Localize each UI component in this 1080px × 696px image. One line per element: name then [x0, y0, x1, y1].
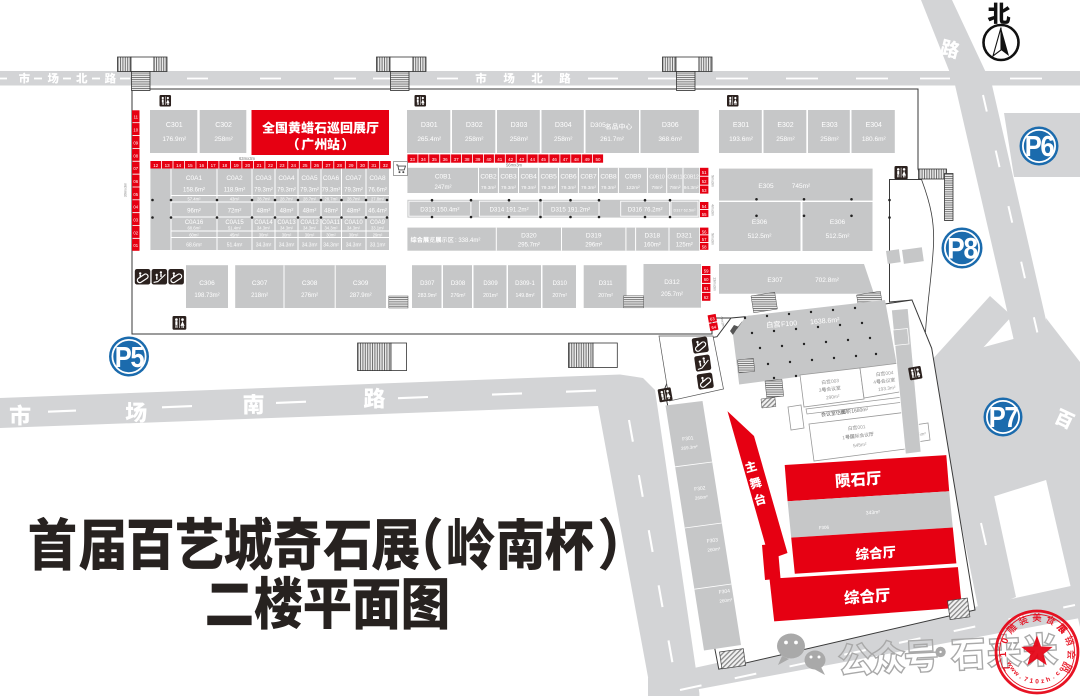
svg-text:247m²: 247m² — [434, 185, 451, 191]
svg-text:C0A6: C0A6 — [323, 175, 340, 182]
svg-text:48m²: 48m² — [303, 209, 317, 215]
svg-text:E302: E302 — [777, 122, 793, 129]
svg-text:D307: D307 — [420, 281, 435, 287]
svg-text:05: 05 — [133, 192, 138, 197]
svg-text:E307: E307 — [767, 277, 783, 284]
svg-text:09: 09 — [133, 140, 138, 145]
svg-text:13mx3m: 13mx3m — [713, 277, 717, 291]
svg-text:30: 30 — [360, 163, 366, 168]
svg-text:25: 25 — [303, 163, 309, 168]
svg-text:30m²: 30m² — [326, 232, 336, 237]
svg-text:E303: E303 — [821, 122, 837, 129]
svg-text:27: 27 — [325, 163, 331, 168]
svg-text:D318: D318 — [645, 233, 661, 240]
svg-text:34.3m²: 34.3m² — [256, 243, 272, 249]
svg-text:P8: P8 — [947, 231, 977, 265]
svg-text:D302: D302 — [466, 122, 483, 129]
svg-text:20: 20 — [245, 163, 251, 168]
svg-text:02: 02 — [133, 230, 138, 235]
svg-text:702.8m²: 702.8m² — [815, 277, 840, 284]
svg-text:D314 191.2m²: D314 191.2m² — [489, 207, 528, 214]
svg-text:79.3m²: 79.3m² — [581, 185, 596, 191]
svg-text:01: 01 — [133, 243, 138, 248]
svg-text:h: h — [1045, 676, 1051, 684]
svg-text:D309-1: D309-1 — [515, 281, 535, 287]
svg-text:D304: D304 — [555, 122, 572, 129]
svg-text:1: 1 — [1029, 678, 1034, 686]
svg-text:27.8m²: 27.8m² — [371, 196, 385, 201]
svg-text:E304: E304 — [866, 122, 882, 129]
svg-text:48m²: 48m² — [324, 209, 338, 215]
svg-text:C0A8: C0A8 — [369, 175, 386, 182]
svg-text:30m²: 30m² — [349, 232, 359, 237]
svg-text:D306: D306 — [662, 122, 679, 129]
svg-text:18: 18 — [222, 163, 228, 168]
svg-text:79.3m²: 79.3m² — [601, 185, 616, 191]
svg-text:P5: P5 — [115, 340, 145, 373]
svg-text:96m²: 96m² — [187, 209, 201, 215]
svg-text:58: 58 — [702, 245, 707, 250]
svg-text:34.3m²: 34.3m² — [280, 226, 294, 231]
svg-text:34.3m²: 34.3m² — [303, 226, 317, 231]
svg-text:04: 04 — [133, 205, 138, 210]
svg-text:258m²: 258m² — [554, 136, 573, 143]
svg-text:28.7m²: 28.7m² — [303, 196, 317, 201]
svg-text:C0B10: C0B10 — [649, 175, 665, 181]
svg-text:258m²: 258m² — [214, 136, 233, 143]
svg-text:F100: F100 — [781, 320, 798, 328]
svg-text:258m²: 258m² — [510, 136, 529, 143]
svg-text:: 338.4m²: : 338.4m² — [455, 238, 480, 244]
svg-text:258m²: 258m² — [820, 136, 839, 143]
svg-text:C0B6: C0B6 — [560, 174, 577, 181]
svg-text:D309: D309 — [483, 281, 498, 287]
svg-text:79.3m²: 79.3m² — [300, 188, 319, 194]
svg-text:7: 7 — [1023, 676, 1029, 684]
svg-text:79.3m²: 79.3m² — [541, 185, 556, 191]
svg-text:28: 28 — [337, 163, 343, 168]
svg-text:283.9m²: 283.9m² — [418, 293, 437, 299]
svg-text:296m²: 296m² — [585, 243, 602, 249]
svg-text:45: 45 — [541, 157, 547, 162]
svg-text:38: 38 — [464, 157, 470, 162]
svg-text:158.6m²: 158.6m² — [183, 188, 205, 194]
svg-text:34: 34 — [421, 157, 427, 162]
svg-text:D312: D312 — [664, 279, 680, 286]
svg-text:26: 26 — [314, 163, 320, 168]
svg-text:49: 49 — [585, 157, 591, 162]
svg-text:29: 29 — [348, 163, 354, 168]
svg-text:512.5m²: 512.5m² — [748, 233, 773, 240]
svg-text:45m²: 45m² — [230, 232, 240, 237]
svg-text:62: 62 — [704, 295, 709, 300]
svg-text:56: 56 — [702, 229, 707, 234]
svg-text:C302: C302 — [215, 122, 232, 129]
svg-text:D308: D308 — [451, 281, 466, 287]
svg-text:06: 06 — [133, 179, 138, 184]
svg-text:43m²: 43m² — [230, 196, 240, 201]
svg-text:125m²: 125m² — [676, 243, 693, 249]
svg-text:34.3m²: 34.3m² — [324, 226, 338, 231]
svg-text:28.7m²: 28.7m² — [324, 196, 338, 201]
svg-text:9mx3m: 9mx3m — [711, 233, 715, 245]
svg-text:149.8m²: 149.8m² — [515, 293, 534, 299]
svg-text:C0B1: C0B1 — [435, 174, 452, 181]
svg-text:52: 52 — [702, 179, 707, 184]
svg-text:160m²: 160m² — [644, 243, 661, 249]
svg-text:39mx3m: 39mx3m — [124, 183, 128, 198]
svg-text:C0B3: C0B3 — [500, 174, 517, 181]
svg-text:48m²: 48m² — [257, 209, 271, 215]
svg-text:C0B5: C0B5 — [540, 174, 557, 181]
svg-text:79.3m²: 79.3m² — [277, 188, 296, 194]
svg-text:9mx3m: 9mx3m — [711, 175, 715, 187]
svg-text:33.1m²: 33.1m² — [371, 226, 385, 231]
svg-text:28.7m²: 28.7m² — [280, 196, 294, 201]
svg-text:56mx3m: 56mx3m — [506, 163, 523, 168]
svg-text:50: 50 — [596, 157, 602, 162]
svg-text:C0A4: C0A4 — [278, 175, 295, 182]
svg-text:.: . — [1018, 674, 1023, 681]
svg-text:41: 41 — [497, 157, 503, 162]
svg-text:19: 19 — [234, 163, 240, 168]
svg-text:D313 150.4m²: D313 150.4m² — [420, 207, 459, 214]
svg-text:C307: C307 — [252, 280, 268, 287]
svg-text:E306: E306 — [752, 219, 768, 226]
svg-text:79.3m²: 79.3m² — [561, 185, 576, 191]
svg-text:21: 21 — [257, 163, 263, 168]
svg-text:34.3m²: 34.3m² — [346, 243, 362, 249]
svg-text:28.7m²: 28.7m² — [347, 196, 361, 201]
svg-text:258m²: 258m² — [776, 136, 795, 143]
svg-text:34.3m²: 34.3m² — [257, 226, 271, 231]
svg-text:207m²: 207m² — [552, 293, 567, 299]
svg-text:207m²: 207m² — [598, 293, 613, 299]
svg-text:07: 07 — [133, 166, 138, 171]
svg-text:D315 191.2m²: D315 191.2m² — [551, 207, 590, 214]
svg-text:34.3m²: 34.3m² — [302, 243, 318, 249]
svg-text:P6: P6 — [1025, 130, 1055, 163]
svg-text:C0B2: C0B2 — [480, 174, 497, 181]
svg-text:193.6m²: 193.6m² — [729, 136, 754, 143]
svg-text:48m²: 48m² — [280, 209, 294, 215]
svg-text:122m²: 122m² — [626, 185, 640, 191]
svg-text:22: 22 — [268, 163, 274, 168]
svg-text:D320: D320 — [521, 233, 537, 240]
svg-text:D316 76.2m²: D316 76.2m² — [628, 208, 663, 214]
svg-text:368.6m²: 368.6m² — [658, 136, 683, 143]
svg-text:14: 14 — [176, 163, 182, 168]
svg-text:37: 37 — [454, 157, 460, 162]
svg-text:79.3m²: 79.3m² — [521, 185, 536, 191]
svg-text:D319: D319 — [586, 233, 602, 240]
svg-text:D321: D321 — [676, 233, 692, 240]
svg-text:51: 51 — [702, 170, 707, 175]
svg-text:276m²: 276m² — [451, 293, 466, 299]
svg-text:4mx2m: 4mx2m — [720, 316, 726, 328]
svg-text:79.3m²: 79.3m² — [501, 185, 516, 191]
svg-text:C308: C308 — [302, 280, 318, 287]
svg-text:C0A1: C0A1 — [186, 175, 203, 182]
svg-text:68.6m²: 68.6m² — [186, 243, 202, 249]
svg-text:C0B8: C0B8 — [600, 174, 617, 181]
svg-text:512.5m²: 512.5m² — [826, 233, 851, 240]
svg-text:180.6m²: 180.6m² — [862, 136, 887, 143]
svg-text:79.3m²: 79.3m² — [344, 188, 363, 194]
svg-text:79.3m²: 79.3m² — [254, 188, 273, 194]
svg-text:D305: D305 — [590, 122, 606, 129]
svg-text:C301: C301 — [166, 122, 183, 129]
svg-text:46: 46 — [552, 157, 558, 162]
svg-text:53: 53 — [702, 188, 707, 193]
svg-text:11: 11 — [134, 115, 139, 120]
svg-text:C0B11: C0B11 — [668, 175, 683, 181]
svg-text:57: 57 — [702, 237, 707, 242]
svg-text:4mx3m: 4mx3m — [711, 204, 715, 216]
svg-text:13: 13 — [165, 163, 171, 168]
svg-text:D301: D301 — [421, 122, 438, 129]
svg-text:D310: D310 — [553, 281, 568, 287]
svg-text:10: 10 — [133, 128, 138, 133]
svg-text:46.4m²: 46.4m² — [368, 209, 387, 215]
svg-text:23: 23 — [280, 163, 286, 168]
svg-text:39: 39 — [475, 157, 481, 162]
svg-text:48m²: 48m² — [347, 209, 361, 215]
svg-text:60m²: 60m² — [189, 232, 199, 237]
svg-text:C0A2: C0A2 — [226, 175, 243, 182]
svg-text:295.7m²: 295.7m² — [518, 243, 540, 249]
svg-text:258m²: 258m² — [465, 136, 484, 143]
svg-text:C309: C309 — [353, 280, 369, 287]
svg-text:55: 55 — [702, 212, 707, 217]
svg-text:44: 44 — [530, 157, 536, 162]
svg-text:D311: D311 — [599, 281, 614, 287]
svg-text:03: 03 — [133, 218, 138, 223]
svg-text:08: 08 — [133, 153, 138, 158]
svg-text:C0B9: C0B9 — [625, 174, 642, 181]
svg-text:60: 60 — [704, 277, 709, 282]
svg-text:47: 47 — [563, 157, 569, 162]
svg-text:34.3m²: 34.3m² — [347, 226, 361, 231]
svg-text:48: 48 — [574, 157, 580, 162]
svg-text:31: 31 — [371, 163, 377, 168]
svg-text:261.7m²: 261.7m² — [600, 136, 625, 143]
svg-text:42: 42 — [508, 157, 514, 162]
svg-text:003: 003 — [831, 378, 840, 385]
svg-text:P7: P7 — [989, 401, 1018, 434]
svg-text:79.3m²: 79.3m² — [322, 188, 341, 194]
svg-text:118.9m²: 118.9m² — [224, 188, 246, 194]
svg-text:54: 54 — [702, 204, 707, 209]
svg-text:79.3m²: 79.3m² — [481, 185, 496, 191]
svg-text:36: 36 — [443, 157, 449, 162]
svg-text:51.4m²: 51.4m² — [228, 226, 242, 231]
svg-text:43: 43 — [519, 157, 525, 162]
svg-text:D303: D303 — [511, 122, 528, 129]
svg-text:343m²: 343m² — [866, 509, 881, 516]
svg-text:205.7m²: 205.7m² — [661, 292, 683, 298]
svg-text:29m²: 29m² — [373, 232, 383, 237]
svg-text:72m²: 72m² — [228, 209, 242, 215]
svg-text:78m²: 78m² — [670, 185, 681, 191]
svg-text:33: 33 — [410, 157, 416, 162]
svg-text:94.3m²: 94.3m² — [684, 185, 699, 191]
svg-text:C0A7: C0A7 — [345, 175, 362, 182]
svg-text:40: 40 — [486, 157, 492, 162]
svg-text:C306: C306 — [199, 280, 215, 287]
svg-text:33.1m²: 33.1m² — [370, 243, 386, 249]
svg-text:78m²: 78m² — [652, 185, 663, 191]
svg-text:265.4m²: 265.4m² — [417, 136, 442, 143]
svg-text:28.7m²: 28.7m² — [257, 196, 271, 201]
svg-text:C0A3: C0A3 — [255, 175, 272, 182]
svg-text:24: 24 — [291, 163, 297, 168]
svg-text:30m²: 30m² — [259, 232, 269, 237]
svg-text:63mx3m: 63mx3m — [239, 156, 256, 161]
svg-text:E301: E301 — [733, 122, 749, 129]
svg-text:218m²: 218m² — [251, 293, 268, 299]
svg-text:F306: F306 — [819, 525, 830, 531]
svg-text:E306: E306 — [830, 219, 846, 226]
svg-text:59: 59 — [704, 268, 709, 273]
svg-text:276m²: 276m² — [301, 293, 318, 299]
svg-text:30m²: 30m² — [282, 232, 292, 237]
svg-text:57.4m²: 57.4m² — [187, 196, 201, 201]
svg-text:76.6m²: 76.6m² — [368, 188, 387, 194]
svg-text:34.3m²: 34.3m² — [279, 243, 295, 249]
svg-text:001: 001 — [857, 424, 866, 431]
svg-text:D317 62.5m²: D317 62.5m² — [674, 209, 697, 213]
svg-text:68.6m²: 68.6m² — [187, 226, 201, 231]
svg-text:176.9m²: 176.9m² — [162, 136, 187, 143]
svg-text:51.4m²: 51.4m² — [227, 243, 243, 249]
svg-text:17: 17 — [211, 163, 217, 168]
svg-text:198.73m²: 198.73m² — [194, 293, 219, 299]
svg-text:30m²: 30m² — [305, 232, 315, 237]
svg-text:745m²: 745m² — [792, 183, 811, 190]
svg-text:15: 15 — [188, 163, 194, 168]
svg-text:E305: E305 — [758, 183, 774, 190]
svg-text:C0B4: C0B4 — [520, 174, 537, 181]
svg-text:32: 32 — [383, 163, 389, 168]
svg-text:35: 35 — [432, 157, 438, 162]
svg-text:C0B7: C0B7 — [580, 174, 597, 181]
svg-text:287.9m²: 287.9m² — [350, 293, 372, 299]
svg-text:0: 0 — [1035, 679, 1039, 686]
svg-text:C0A5: C0A5 — [301, 175, 318, 182]
svg-text:34.3m²: 34.3m² — [323, 243, 339, 249]
svg-text:12: 12 — [153, 163, 159, 168]
svg-text:61: 61 — [704, 286, 709, 291]
svg-text:004: 004 — [885, 370, 894, 377]
svg-text:C0B12: C0B12 — [684, 175, 700, 181]
svg-text:201m²: 201m² — [483, 293, 498, 299]
svg-text:16: 16 — [199, 163, 205, 168]
